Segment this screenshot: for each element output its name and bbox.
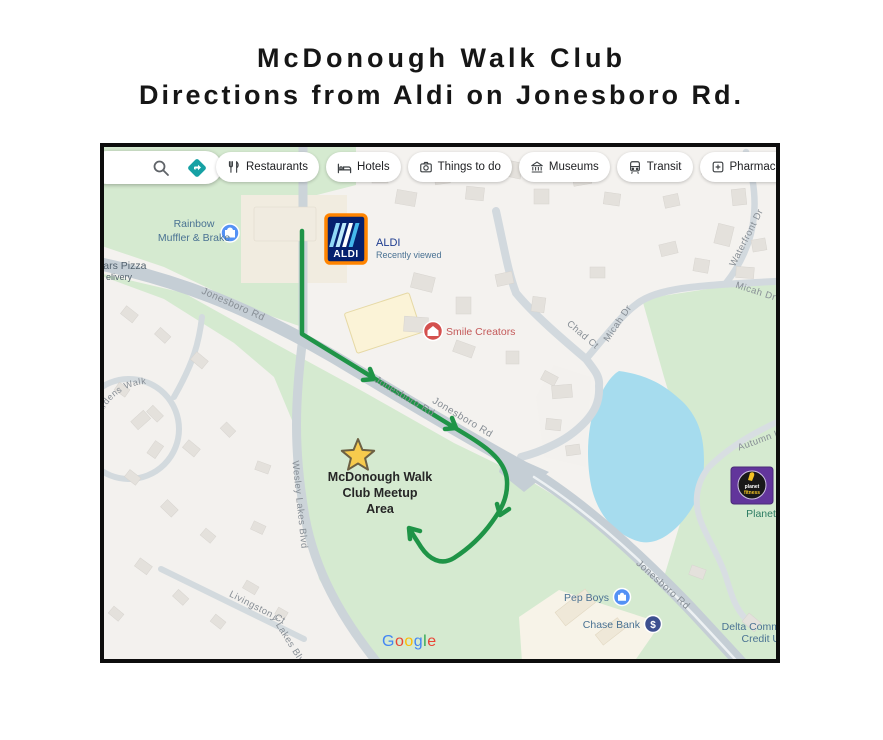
planet-label[interactable]: Planet	[746, 508, 776, 520]
chip-museums[interactable]: Museums	[519, 152, 610, 182]
pep-boys-label[interactable]: Pep Boys	[564, 592, 609, 604]
chip-things-to-do[interactable]: Things to do	[408, 152, 512, 182]
title-line1: McDonough Walk Club	[0, 40, 883, 77]
chase-bank-label[interactable]: Chase Bank	[583, 619, 641, 631]
title-line2: Directions from Aldi on Jonesboro Rd.	[0, 77, 883, 114]
chip-label: Things to do	[438, 161, 501, 173]
rainbow-label-1[interactable]: Rainbow	[174, 218, 215, 230]
delta-label-1[interactable]: Delta Comm	[722, 621, 776, 633]
smile-creators-marker[interactable]	[424, 322, 443, 341]
rainbow-label-2[interactable]: Muffler & Brake	[158, 232, 230, 244]
chip-transit[interactable]: Transit	[617, 152, 693, 182]
things-to-do-icon	[419, 160, 433, 174]
dollar-icon: $	[650, 620, 656, 631]
chip-label: Museums	[549, 161, 599, 173]
smile-creators-label[interactable]: Smile Creators	[446, 326, 515, 338]
map-viewport[interactable]: $ ALDI p	[100, 143, 780, 663]
chip-label: Transit	[647, 161, 682, 173]
page: McDonough Walk Club Directions from Aldi…	[0, 0, 883, 740]
restaurants-icon	[227, 160, 241, 174]
search-bar[interactable]	[100, 151, 222, 184]
aldi-status-label: Recently viewed	[376, 250, 442, 260]
aldi-logo-text: ALDI	[333, 249, 358, 260]
page-title: McDonough Walk Club Directions from Aldi…	[0, 40, 883, 114]
chip-label: Restaurants	[246, 161, 308, 173]
hotels-icon	[337, 160, 352, 175]
aldi-logo-marker[interactable]: ALDI	[326, 215, 366, 263]
chip-restaurants[interactable]: Restaurants	[216, 152, 319, 182]
chip-hotels[interactable]: Hotels	[326, 152, 401, 182]
category-chips: Restaurants Hotels Things to do	[216, 152, 780, 182]
watermark-letter: G	[382, 633, 395, 650]
chip-label: Pharmacies	[730, 161, 780, 173]
transit-icon	[628, 160, 642, 174]
museums-icon	[530, 160, 544, 174]
meetup-text-1: McDonough Walk	[328, 470, 432, 484]
watermark-letter: o	[404, 633, 413, 650]
caesars-label-1[interactable]: sars Pizza	[104, 260, 147, 272]
chip-label: Hotels	[357, 161, 390, 173]
meetup-text-3: Area	[366, 502, 395, 516]
map-canvas: $ ALDI p	[104, 147, 776, 659]
pep-boys-marker[interactable]	[614, 589, 631, 606]
aldi-label[interactable]: ALDI	[376, 237, 400, 249]
directions-icon[interactable]	[186, 157, 208, 179]
search-icon[interactable]	[152, 159, 170, 177]
chip-pharmacies[interactable]: Pharmacies	[700, 152, 780, 182]
watermark-letter: o	[395, 633, 404, 650]
pf-text-2: fitness	[744, 490, 760, 496]
caesars-label-2[interactable]: elivery	[106, 272, 133, 282]
watermark-letter: e	[427, 633, 436, 650]
chase-bank-marker[interactable]: $	[645, 616, 662, 633]
google-watermark: Google	[382, 633, 437, 651]
delta-label-2[interactable]: Credit U	[741, 633, 776, 645]
pharmacies-icon	[711, 160, 725, 174]
planet-fitness-marker[interactable]: planet fitness	[731, 467, 773, 504]
watermark-letter: g	[414, 633, 423, 650]
meetup-text-2: Club Meetup	[343, 486, 418, 500]
